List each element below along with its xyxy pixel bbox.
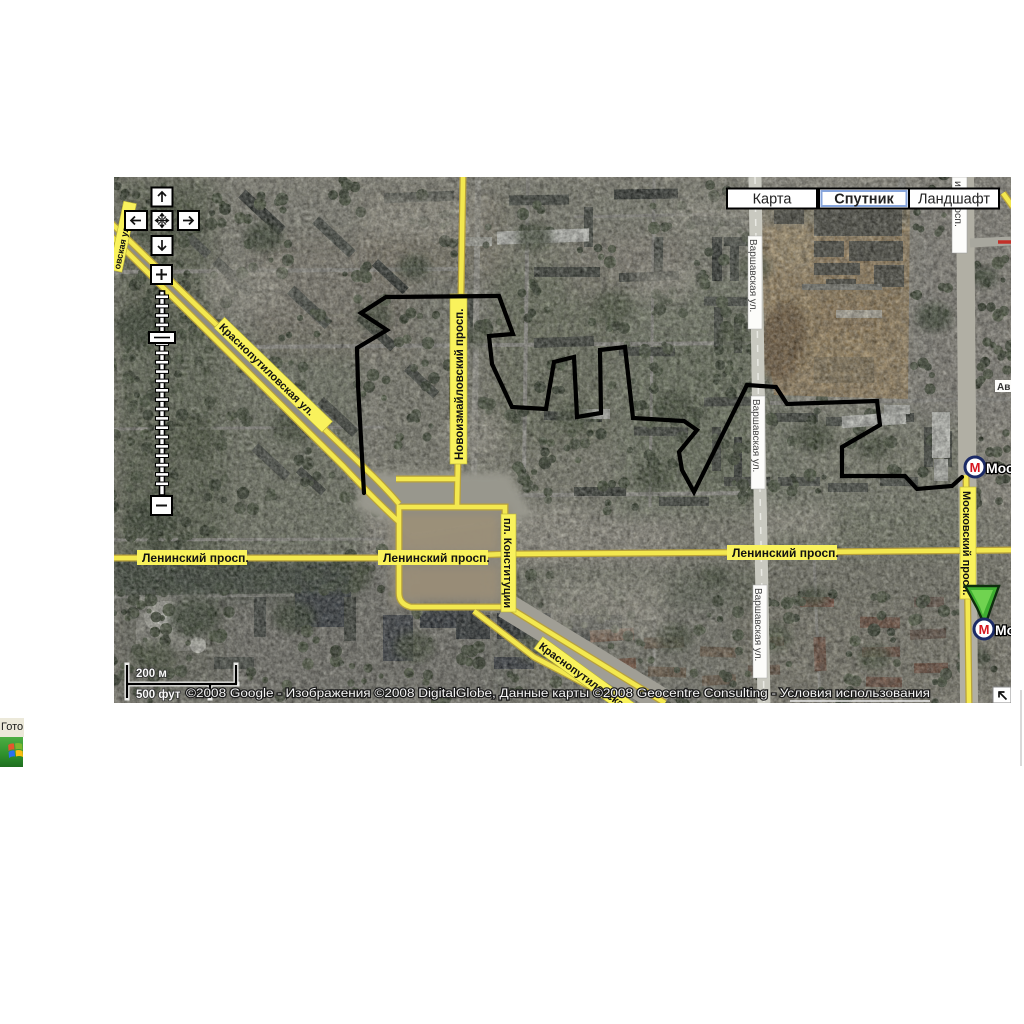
svg-text:Мо: Мо xyxy=(995,622,1011,638)
svg-text:Московский просп.: Московский просп. xyxy=(960,491,972,595)
svg-text:М: М xyxy=(979,622,990,637)
svg-text:Ав: Ав xyxy=(997,382,1010,393)
svg-text:Спутник: Спутник xyxy=(834,192,894,208)
svg-text:Новоизмайловский просп.: Новоизмайловский просп. xyxy=(454,309,466,460)
svg-text:Ленинский просп.: Ленинский просп. xyxy=(142,551,249,565)
svg-text:М: М xyxy=(970,460,981,475)
svg-text:Варшавская ул.: Варшавская ул. xyxy=(750,399,761,472)
svg-text:Ландшафт: Ландшафт xyxy=(918,192,990,208)
svg-text:Варшавская ул.: Варшавская ул. xyxy=(747,239,758,312)
svg-text:пл. Конституции: пл. Конституции xyxy=(501,518,513,608)
svg-text:Ленинский просп.: Ленинский просп. xyxy=(732,546,839,560)
svg-text:500 фут: 500 фут xyxy=(136,689,181,701)
svg-text:Мос: Мос xyxy=(986,460,1011,476)
svg-text:©2008 Google - Изображения ©20: ©2008 Google - Изображения ©2008 Digital… xyxy=(186,686,930,700)
svg-text:Ленинский просп.: Ленинский просп. xyxy=(383,551,490,565)
svg-text:200 м: 200 м xyxy=(136,668,167,680)
svg-text:Варшавская ул.: Варшавская ул. xyxy=(752,588,763,661)
svg-text:Карта: Карта xyxy=(753,192,793,208)
